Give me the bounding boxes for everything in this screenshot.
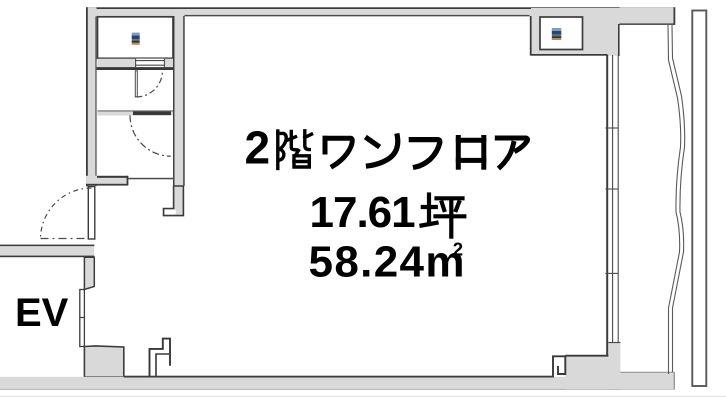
svg-text:EV: EV bbox=[15, 291, 69, 335]
svg-text:17.61: 17.61 bbox=[310, 188, 416, 237]
svg-text:58.24m: 58.24m bbox=[309, 237, 465, 286]
svg-text:2: 2 bbox=[453, 238, 463, 259]
svg-text:2: 2 bbox=[245, 121, 271, 173]
